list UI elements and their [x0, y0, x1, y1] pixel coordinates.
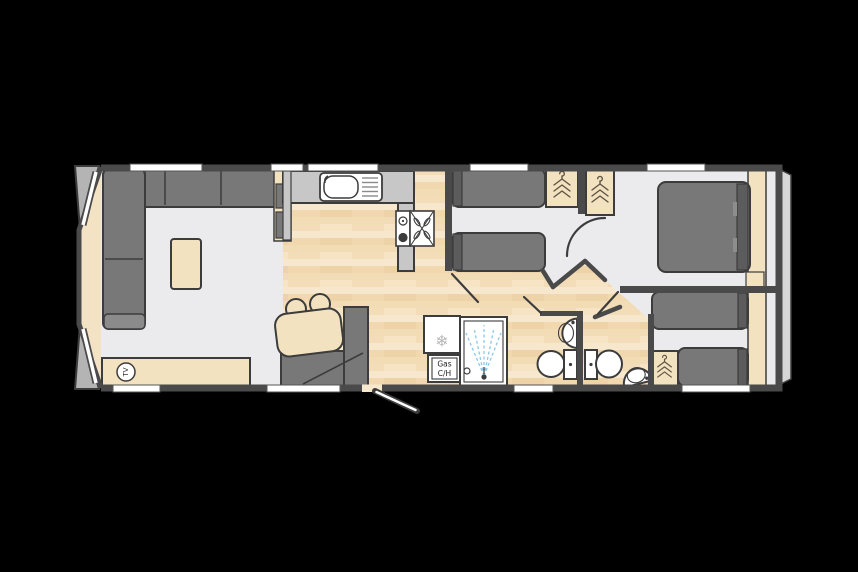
toilet-bowl — [538, 351, 565, 377]
cistern-button — [569, 363, 572, 366]
window-master-bedroom — [647, 164, 705, 171]
shelf — [746, 272, 764, 287]
dining-area — [274, 294, 368, 386]
rear-twin-bed-1-headboard — [738, 293, 747, 328]
dining-table-top — [274, 307, 345, 358]
double-bed — [658, 182, 750, 272]
dining-bench-right — [344, 307, 368, 386]
wall-twin-master — [578, 166, 585, 214]
wall-wc-rear — [648, 314, 654, 388]
coffee-table — [171, 239, 201, 289]
burner-dot — [402, 220, 404, 222]
window-kitchen — [308, 164, 378, 171]
window-lounge-bottom — [113, 385, 160, 392]
wall-shower-top — [540, 311, 581, 316]
twin-bed-1-headboard — [453, 170, 462, 206]
twin-bed-1 — [452, 169, 545, 207]
window-twin-bedroom — [470, 164, 528, 171]
sofa-arm-end — [104, 314, 145, 329]
burner-icon-filled — [398, 233, 407, 242]
window-rear-bedroom — [682, 385, 750, 392]
tv-label: TV — [122, 367, 130, 377]
twin-bed-2-headboard — [453, 234, 462, 270]
window-shower-room — [514, 385, 553, 392]
pillow-notch — [733, 238, 737, 252]
entrance-door-leaf-face — [377, 392, 416, 410]
wardrobe — [546, 167, 578, 207]
rear-twin-bed-1 — [652, 292, 748, 329]
double-bed-headboard — [737, 184, 748, 270]
window-dining — [267, 385, 340, 392]
floorplan: TV — [0, 0, 858, 572]
basin-tap-icon — [571, 321, 574, 324]
bedside-panel — [748, 292, 766, 388]
dining-table — [274, 307, 345, 358]
toilet-bowl — [596, 351, 622, 378]
twin-bed-2 — [452, 233, 545, 271]
wall-kitchen-twin — [445, 166, 452, 271]
wall-shower-wc — [577, 311, 583, 388]
gas-label-line1: Gas — [437, 360, 451, 369]
kitchen-counter-left — [283, 171, 291, 240]
sofa-left — [103, 169, 145, 329]
gas-label-line2: C/H — [438, 369, 451, 378]
sink-bowl — [324, 176, 358, 198]
rear-twin-bed-2-headboard — [738, 349, 747, 385]
cistern-button — [589, 363, 592, 366]
window-lounge-top — [130, 164, 202, 171]
snowflake-icon: ❄ — [435, 332, 448, 351]
wall-master-rear — [620, 286, 781, 293]
pillow-notch — [733, 202, 737, 216]
wardrobe — [651, 351, 678, 387]
window-kitchen-small — [271, 164, 303, 171]
floorplan-svg: TV — [0, 0, 858, 572]
shower-head-icon — [481, 374, 486, 379]
